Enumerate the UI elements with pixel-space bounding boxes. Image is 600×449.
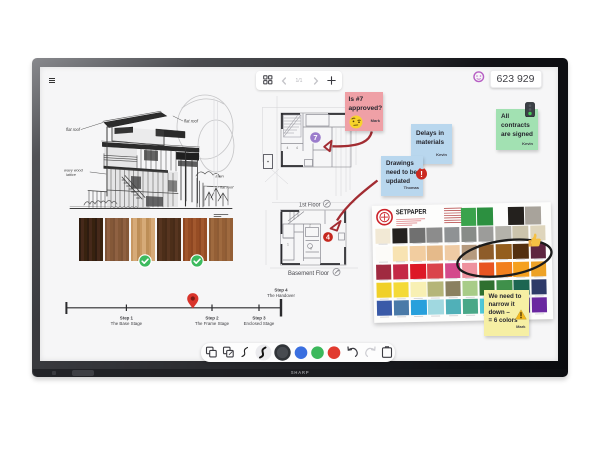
svg-text:Step 1: Step 1 [120,316,134,321]
svg-text:flat roof: flat roof [66,127,81,132]
svg-text:!: ! [420,168,423,178]
svg-text:2: 2 [309,224,311,228]
svg-text:The Base Stage: The Base Stage [111,321,143,326]
svg-text:Basement Floor: Basement Floor [288,270,329,277]
svg-text:lattice: lattice [66,173,76,177]
svg-text:Step 4: Step 4 [274,288,288,293]
svg-text:Enclosed Stage: Enclosed Stage [244,321,275,326]
svg-text:4: 4 [287,146,289,150]
svg-text:The Frame Stage: The Frame Stage [195,321,230,326]
svg-text:Step 3: Step 3 [252,316,266,321]
svg-text:lawn: lawn [216,174,225,179]
svg-text:7: 7 [313,133,317,142]
svg-text:flat roof: flat roof [220,185,234,190]
svg-text:3: 3 [310,247,312,251]
svg-text:4: 4 [326,234,330,241]
svg-text:Step 2: Step 2 [205,316,219,321]
svg-text:1: 1 [287,243,289,247]
svg-text:flat roof: flat roof [184,119,199,124]
svg-text:The Handover: The Handover [267,293,295,298]
svg-text:4: 4 [296,146,298,150]
